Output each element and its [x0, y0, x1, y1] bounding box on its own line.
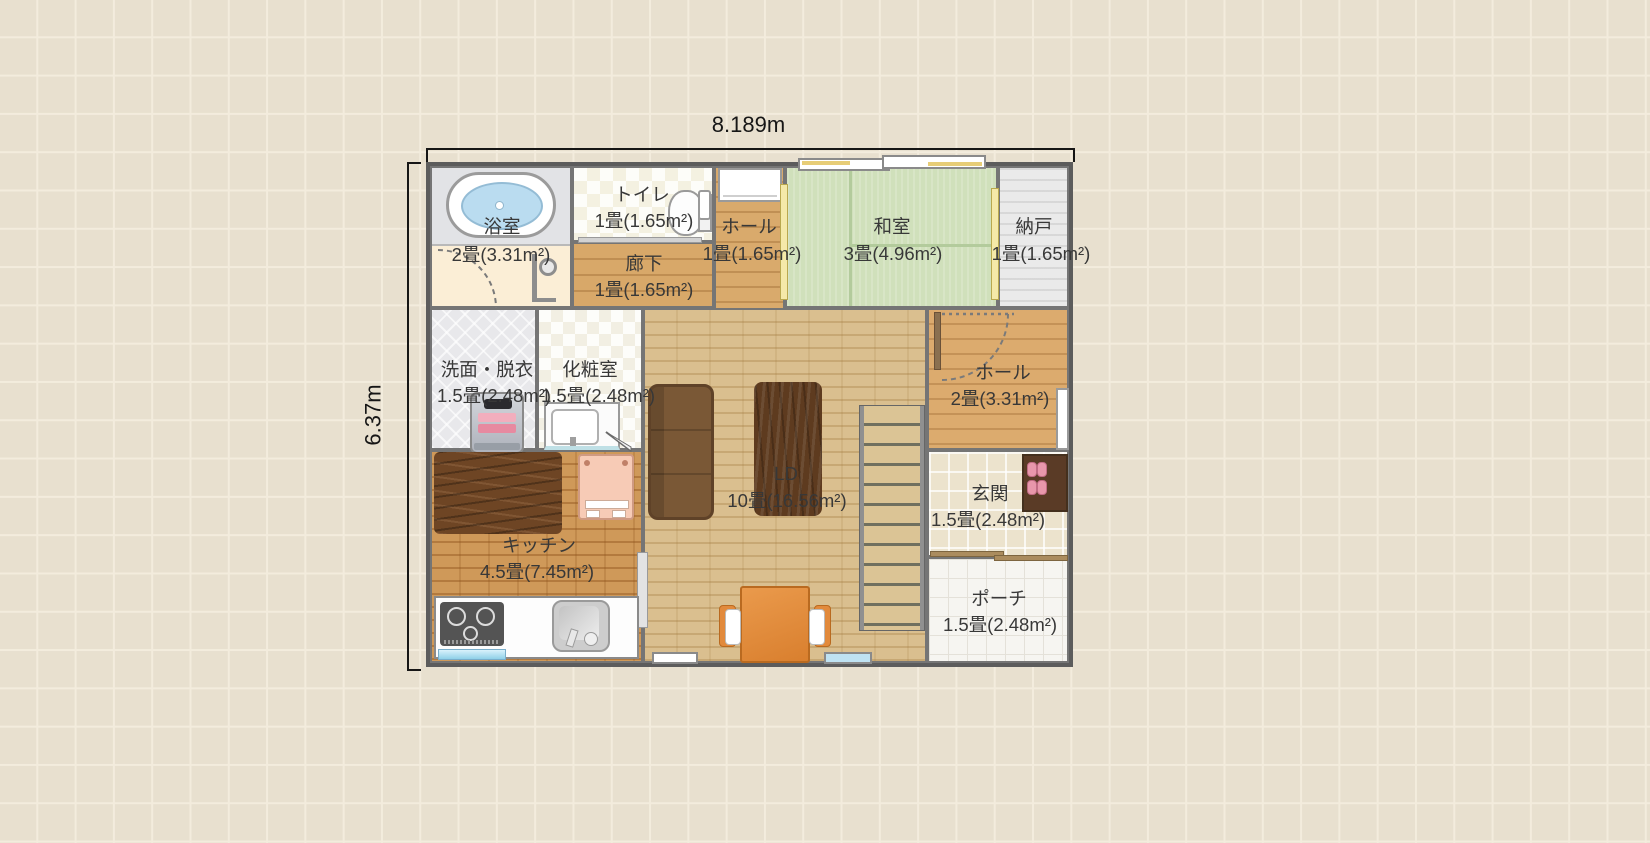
room-label-corridor-name: 廊下 [625, 250, 662, 276]
window-icon[interactable] [652, 652, 698, 664]
slippers-icon [1027, 480, 1037, 495]
sliding-door-icon[interactable] [578, 237, 702, 243]
room-label-porch-name: ポーチ [971, 585, 1027, 611]
slippers-icon [1037, 480, 1047, 495]
sliding-door-icon[interactable] [930, 551, 1068, 561]
slippers-icon [1037, 462, 1047, 477]
vanity-sink-icon[interactable] [544, 402, 620, 450]
shoe-cabinet-icon[interactable] [1022, 454, 1068, 512]
room-label-bathroom-name: 浴室 [483, 213, 520, 239]
dining-table-icon[interactable] [740, 586, 810, 663]
window-frame-accent [802, 161, 850, 165]
floor-plan: 浴室 2畳(3.31m²) トイレ 1畳(1.65m²) ホール 1畳(1.65… [426, 162, 1073, 667]
door-leaf-icon[interactable] [934, 312, 941, 370]
sliding-window-icon[interactable] [798, 158, 890, 171]
room-label-entrance-area: 1.5畳(2.48m²) [931, 506, 1045, 532]
stairs-icon[interactable] [860, 406, 924, 630]
room-label-toilet-name: トイレ [614, 181, 670, 207]
foot [586, 510, 600, 518]
room-label-washroom-area: 1.5畳(2.48m²) [437, 382, 551, 408]
room-label-hall-upper-area: 1畳(1.65m²) [703, 240, 802, 266]
grill [444, 640, 500, 644]
room-label-hall-upper-name: ホール [721, 213, 777, 239]
room-label-hall-entry-area: 2畳(3.31m²) [951, 385, 1050, 411]
washer-base [474, 443, 520, 450]
room-label-powder-room-area: 1.5畳(2.48m²) [541, 382, 655, 408]
sofa-icon[interactable] [648, 384, 714, 520]
foot [612, 510, 626, 518]
room-label-corridor-area: 1畳(1.65m²) [595, 276, 694, 302]
burner [447, 607, 466, 626]
stove-icon[interactable] [440, 602, 504, 646]
burner [463, 626, 478, 641]
chair-icon[interactable] [814, 605, 831, 647]
bathtub-drain [495, 201, 504, 210]
dimension-line-vertical [407, 162, 421, 671]
sink-drain [584, 632, 598, 646]
slippers-icon [1027, 462, 1037, 477]
room-label-kitchen-name: キッチン [502, 532, 576, 558]
room-label-storage-area: 1畳(1.65m²) [992, 240, 1091, 266]
room-label-washroom-name: 洗面・脱衣 [441, 356, 534, 382]
dimension-height-label: 6.37m [361, 384, 387, 445]
washer-panel [478, 424, 516, 433]
room-label-living-dining-name: LD [774, 463, 798, 485]
dimension-width-label: 8.189m [426, 112, 1071, 138]
kitchen-sink-icon[interactable] [552, 600, 610, 652]
dimension-height-label-wrap: 6.37m [352, 162, 396, 667]
room-label-living-dining-area: 10畳(16.56m²) [727, 487, 846, 513]
knob [622, 460, 628, 466]
closet-door-icon[interactable] [1056, 388, 1069, 450]
kitchen-rug-icon[interactable] [434, 452, 562, 534]
room-label-powder-room-name: 化粧室 [562, 356, 618, 382]
room-label-bathroom-area: 2畳(3.31m²) [452, 241, 551, 267]
room-label-storage-name: 納戸 [1015, 213, 1052, 239]
chair-icon[interactable] [719, 605, 736, 647]
toilet-sink-icon[interactable] [698, 190, 711, 220]
burner [476, 607, 495, 626]
room-label-hall-entry-name: ホール [975, 359, 1031, 385]
room-label-toilet-area: 1畳(1.65m²) [595, 207, 694, 233]
kitchen-window-icon [438, 649, 506, 660]
tatami-divider [849, 168, 852, 306]
vanity-faucet [570, 437, 576, 446]
knob [584, 460, 590, 466]
room-label-japanese-room-area: 3畳(4.96m²) [844, 240, 943, 266]
room-label-porch-area: 1.5畳(2.48m²) [943, 611, 1057, 637]
entry-door-icon[interactable] [718, 168, 782, 202]
floor-plan-canvas: 8.189m 6.37m [0, 0, 1650, 843]
washer-panel [478, 413, 516, 422]
room-label-kitchen-area: 4.5畳(7.45m²) [480, 558, 594, 584]
room-label-entrance-name: 玄関 [971, 480, 1008, 506]
window-frame-accent [928, 162, 982, 166]
pet-bed-icon[interactable] [578, 454, 634, 520]
window-icon[interactable] [824, 652, 872, 664]
slat [585, 500, 629, 509]
room-label-japanese-room-name: 和室 [873, 213, 910, 239]
sliding-window-icon[interactable] [882, 155, 986, 169]
